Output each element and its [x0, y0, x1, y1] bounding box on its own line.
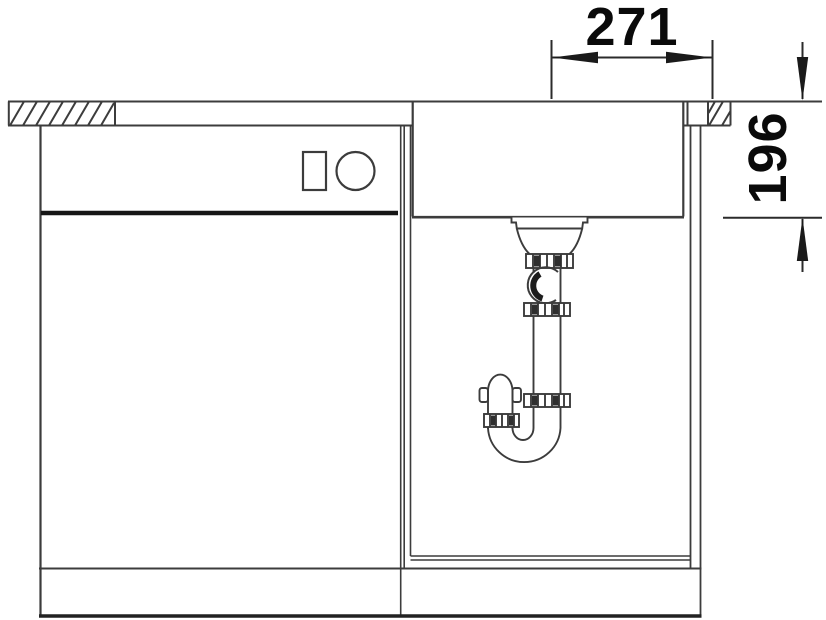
sink-installation-diagram: 271 196 [0, 0, 826, 620]
dimension-horizontal: 271 [552, 0, 713, 99]
drawing-canvas: 271 196 [0, 0, 826, 620]
arrowhead-up-icon [797, 218, 808, 262]
partition-wall [401, 126, 405, 616]
p-trap [480, 375, 561, 463]
slip-nut-3 [524, 394, 570, 407]
dimension-label-vertical: 196 [738, 111, 798, 204]
tailpiece [517, 229, 582, 255]
worktop-cross-section-left-hatch-icon [10, 102, 114, 126]
swivel-elbow [528, 267, 561, 303]
sink-bowl [412, 102, 684, 218]
slip-nut-1 [526, 254, 573, 268]
dimension-vertical: 196 [723, 42, 822, 272]
left-base-unit [41, 126, 399, 616]
worktop-cross-section-right-hatch-icon [709, 102, 731, 126]
plinth [39, 569, 702, 617]
trap-lug-right [513, 388, 522, 402]
slip-nut-2 [524, 303, 570, 316]
right-side-panel [691, 126, 701, 616]
dimension-label-horizontal: 271 [585, 0, 678, 57]
slip-nut-4 [484, 414, 519, 427]
trap-riser-cap [488, 375, 513, 390]
trap-lug-left [480, 388, 489, 402]
drawer-symbol-circle-icon [337, 152, 375, 190]
drain-strainer [512, 218, 588, 229]
arrowhead-down-icon [797, 57, 808, 101]
drain-assembly [480, 218, 588, 463]
sink-base-compartment [411, 126, 691, 561]
standpipe [534, 316, 561, 428]
drawer-symbol-rect-icon [303, 152, 326, 190]
worktop [8, 102, 822, 126]
